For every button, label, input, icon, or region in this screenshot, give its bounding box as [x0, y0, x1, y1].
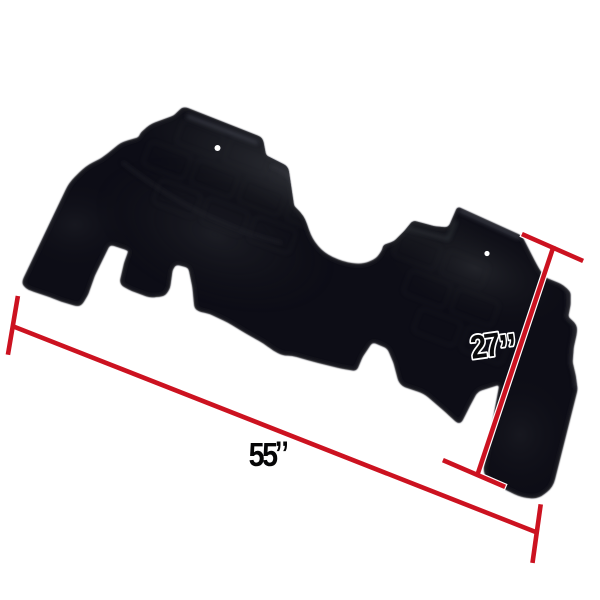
svg-text:’’: ’’ [275, 434, 289, 473]
svg-text:55: 55 [249, 436, 278, 474]
